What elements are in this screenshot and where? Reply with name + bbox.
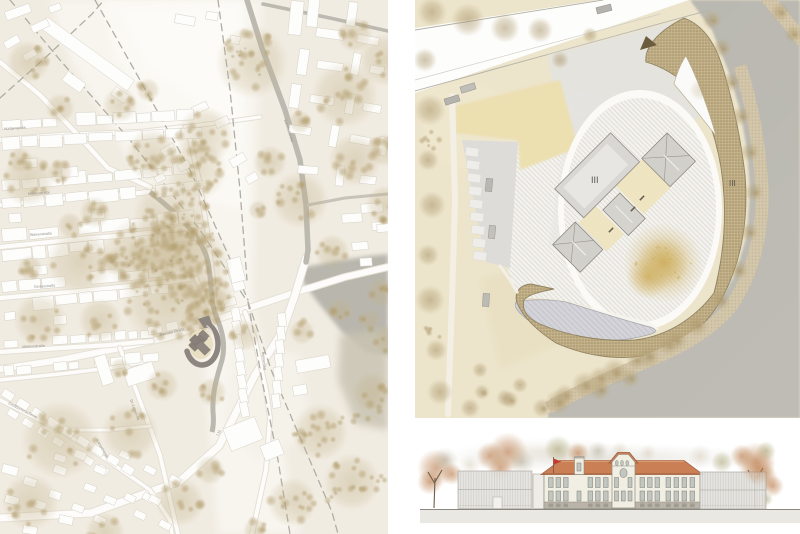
svg-text:III: III bbox=[591, 175, 599, 185]
svg-text:III: III bbox=[729, 179, 736, 188]
